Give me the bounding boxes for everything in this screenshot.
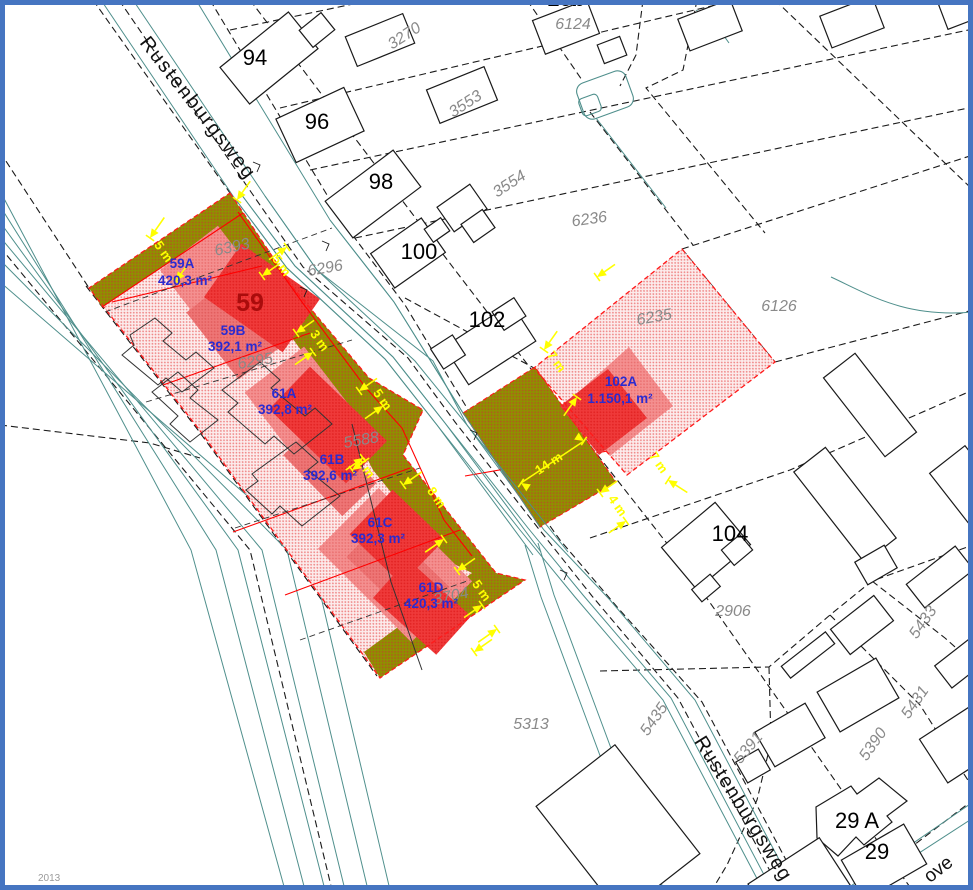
svg-text:61D: 61D — [419, 580, 444, 595]
svg-text:392,1 m²: 392,1 m² — [208, 339, 263, 354]
svg-text:6126: 6126 — [761, 298, 797, 315]
svg-text:5313: 5313 — [513, 716, 549, 733]
svg-text:102: 102 — [469, 307, 506, 332]
svg-text:96: 96 — [305, 109, 329, 134]
svg-text:100: 100 — [401, 239, 438, 264]
svg-text:59A: 59A — [170, 256, 195, 271]
svg-text:94: 94 — [243, 45, 267, 70]
svg-text:6124: 6124 — [555, 16, 591, 33]
svg-text:29 A: 29 A — [835, 808, 879, 833]
svg-text:1.150,1 m²: 1.150,1 m² — [587, 391, 653, 406]
svg-text:61B: 61B — [320, 452, 345, 467]
svg-text:102A: 102A — [605, 374, 638, 389]
svg-text:61C: 61C — [368, 515, 393, 530]
svg-text:29: 29 — [865, 839, 889, 864]
svg-text:392,3 m²: 392,3 m² — [351, 531, 406, 546]
svg-text:59B: 59B — [221, 323, 246, 338]
svg-text:59: 59 — [236, 289, 264, 317]
svg-text:104: 104 — [712, 521, 749, 546]
svg-text:420,3 m²: 420,3 m² — [158, 273, 213, 288]
svg-text:392,8 m²: 392,8 m² — [258, 402, 313, 417]
svg-text:2013: 2013 — [38, 873, 61, 884]
svg-text:61A: 61A — [272, 386, 297, 401]
svg-text:98: 98 — [369, 169, 393, 194]
svg-text:392,6 m²: 392,6 m² — [303, 468, 358, 483]
svg-text:2906: 2906 — [714, 603, 751, 620]
svg-text:420,3 m²: 420,3 m² — [404, 596, 459, 611]
